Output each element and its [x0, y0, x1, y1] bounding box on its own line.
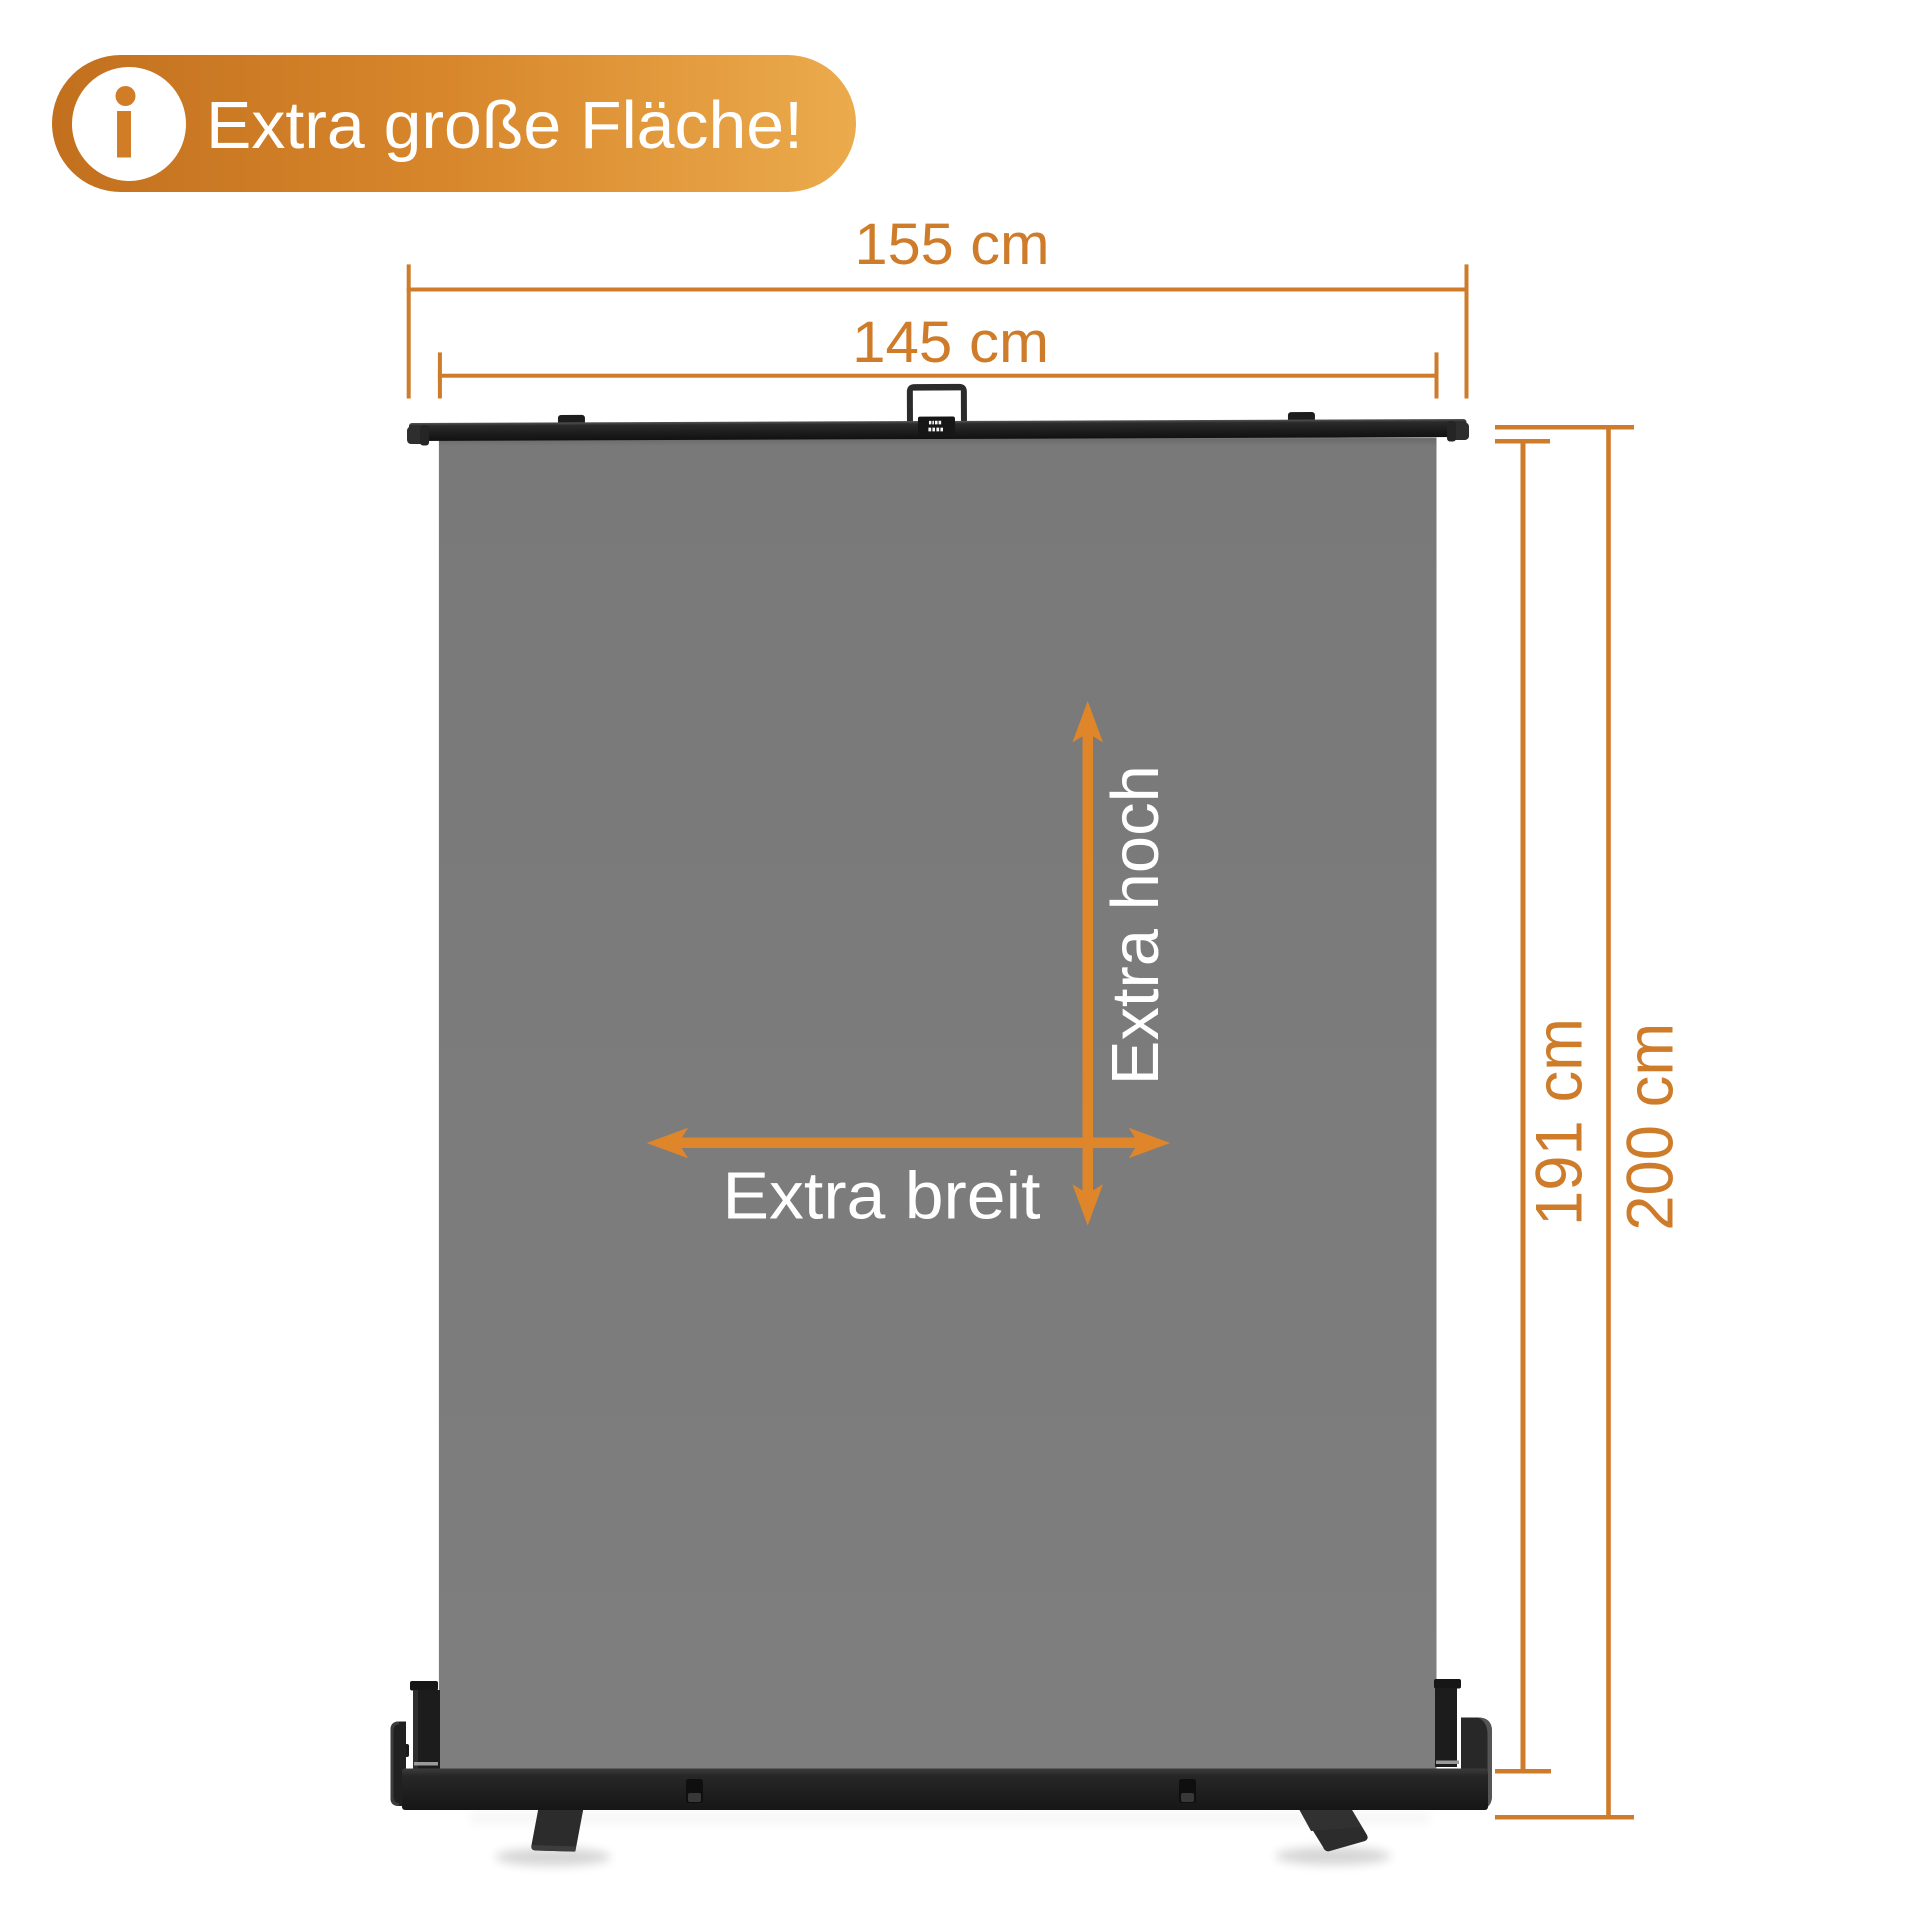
svg-text:155 cm: 155 cm	[855, 212, 1050, 277]
svg-text:Extra breit: Extra breit	[723, 1159, 1041, 1233]
svg-text:Extra hoch: Extra hoch	[1099, 765, 1173, 1085]
svg-text:200 cm: 200 cm	[1613, 1023, 1687, 1231]
svg-text:Extra große Fläche!: Extra große Fläche!	[206, 88, 803, 163]
svg-text:145 cm: 145 cm	[852, 310, 1049, 375]
svg-text:191 cm: 191 cm	[1522, 1018, 1596, 1226]
